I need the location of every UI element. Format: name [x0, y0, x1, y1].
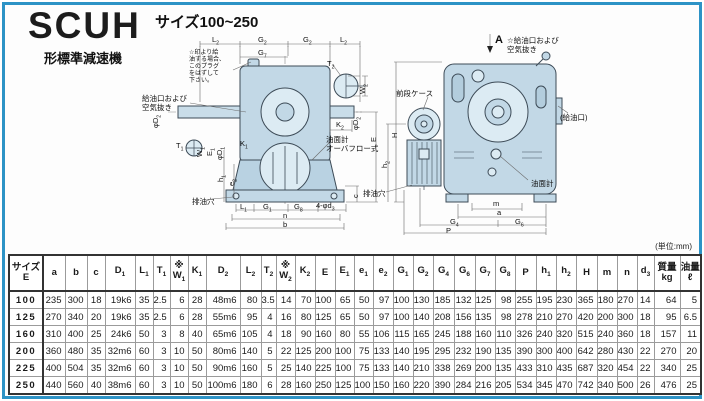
dimension-cell: 105: [240, 326, 261, 343]
dimension-cell: 25: [276, 360, 295, 377]
dimension-cell: 205: [495, 377, 515, 395]
dimension-cell: 200: [597, 309, 617, 326]
dimension-cell: 5: [261, 360, 276, 377]
dimension-cell: 5: [680, 291, 701, 309]
dim-T2: T2: [327, 60, 334, 72]
label-oil-port-vent: 給油口および 空気抜き: [142, 95, 187, 112]
dimension-cell: 320: [556, 326, 576, 343]
dimension-cell: 14: [276, 291, 295, 309]
dimension-cell: 80: [240, 291, 261, 309]
dimension-cell: 195: [536, 291, 556, 309]
dimension-cell: 20: [680, 343, 701, 360]
dimension-cell: 156: [454, 309, 475, 326]
dimension-cell: 300: [536, 343, 556, 360]
dimension-cell: 2.5: [153, 291, 170, 309]
dimension-cell: 6: [261, 377, 276, 395]
dimension-cell: 160: [315, 326, 335, 343]
dim-L2-left: L2: [212, 36, 219, 48]
table-row-size-160: 1603104002524k650384065m6105418901608055…: [9, 326, 701, 343]
dimension-cell: 140: [295, 360, 315, 377]
dimension-cell: 642: [576, 343, 597, 360]
dimension-cell: 60: [135, 360, 153, 377]
column-header: 油量ℓ: [680, 255, 701, 291]
dimension-cell: 200: [475, 360, 495, 377]
dimension-cell: 160: [393, 377, 413, 395]
dimension-cell: 32m6: [105, 343, 135, 360]
dimension-cell: 11: [680, 326, 701, 343]
dimension-cell: 280: [597, 343, 617, 360]
column-header-size: サイズE: [9, 255, 43, 291]
dim-e2: e2: [228, 179, 240, 186]
dimension-cell: 95: [240, 309, 261, 326]
dimension-cell: 480: [65, 343, 87, 360]
dimension-cell: 245: [433, 326, 454, 343]
dimension-cell: 320: [597, 360, 617, 377]
column-header: T1: [153, 255, 170, 291]
dimension-cell: 3: [153, 360, 170, 377]
dimension-cell: 98: [495, 291, 515, 309]
column-header: h2: [556, 255, 576, 291]
dimension-cell: 4: [261, 326, 276, 343]
dimension-cell: 100: [393, 291, 413, 309]
column-header: h1: [536, 255, 556, 291]
dimension-cell: 225: [315, 360, 335, 377]
dimension-cell: 360: [43, 343, 65, 360]
dimension-cell: 65m6: [206, 326, 240, 343]
dimension-cell: 5: [261, 343, 276, 360]
dimension-cell: 97: [373, 291, 393, 309]
dimension-cell: 50: [188, 343, 206, 360]
dimension-cell: 180: [597, 291, 617, 309]
column-header: T2: [261, 255, 276, 291]
dimension-cell: 504: [65, 360, 87, 377]
dimension-cell: 35: [87, 360, 105, 377]
dimension-cell: 22: [276, 343, 295, 360]
table-row-size-100: 1002353001819k6352.562848m6803.514701006…: [9, 291, 701, 309]
dimension-cell: 4: [261, 309, 276, 326]
dimension-cell: 16: [276, 309, 295, 326]
dimension-cell: 64: [654, 291, 680, 309]
dimension-cell: 50: [188, 360, 206, 377]
dimension-cell: 160: [240, 360, 261, 377]
dimension-cell: 135: [495, 360, 515, 377]
dimension-cell: 125: [335, 377, 354, 395]
dim-a: a: [497, 209, 501, 218]
table-row-size-200: 2003604803532m6603105080m614052212520010…: [9, 343, 701, 360]
column-header: D1: [105, 255, 135, 291]
dimension-cell: 433: [515, 360, 536, 377]
dimension-cell: 20: [87, 309, 105, 326]
dimension-cell: 35: [135, 309, 153, 326]
dimension-cell: 560: [65, 377, 87, 395]
dimension-cell: 133: [373, 343, 393, 360]
dimension-cell: 157: [654, 326, 680, 343]
dimension-cell: 8: [170, 326, 188, 343]
label-oil-gauge-side: 油面計: [531, 180, 554, 189]
dimension-cell: 400: [556, 343, 576, 360]
dimension-cell: 35: [135, 291, 153, 309]
dimension-cell: 140: [240, 343, 261, 360]
dimension-cell: 200: [315, 343, 335, 360]
dimension-cell: 18: [276, 326, 295, 343]
row-size-label: 160: [9, 326, 43, 343]
dimension-cell: 270: [617, 291, 637, 309]
dimension-cell: 3.5: [261, 291, 276, 309]
dim-H: H: [391, 133, 400, 138]
dimension-cell: 100: [335, 360, 354, 377]
dimension-cell: 216: [475, 377, 495, 395]
dimension-cell: 278: [515, 309, 536, 326]
dimension-cell: 188: [454, 326, 475, 343]
dimension-cell: 100: [335, 343, 354, 360]
column-header: E: [315, 255, 335, 291]
dimension-cell: 3: [153, 326, 170, 343]
dimension-cell: 270: [556, 309, 576, 326]
dimension-cell: 50: [354, 309, 373, 326]
dim-L2-right: L2: [340, 36, 347, 48]
dimension-cell: 50: [188, 377, 206, 395]
column-header: ※W1: [170, 255, 188, 291]
dimension-cell: 98: [495, 309, 515, 326]
dimension-cell: 130: [413, 291, 433, 309]
column-header: c: [87, 255, 105, 291]
dim-W2: W2: [359, 84, 371, 94]
dimension-cell: 19k6: [105, 309, 135, 326]
dim-P: P: [446, 227, 451, 236]
table-row-size-125: 1252703402019k6352.562855m69541680125655…: [9, 309, 701, 326]
dimension-cell: 300: [617, 309, 637, 326]
column-header: 質量kg: [654, 255, 680, 291]
dimension-cell: 48m6: [206, 291, 240, 309]
dimension-cell: 80: [335, 326, 354, 343]
dimension-cell: 28: [188, 309, 206, 326]
dimension-cell: 2.5: [153, 309, 170, 326]
dimension-cell: 185: [433, 291, 454, 309]
column-header: G4: [433, 255, 454, 291]
dimension-cell: 515: [576, 326, 597, 343]
column-header: G8: [495, 255, 515, 291]
dimension-cell: 235: [43, 291, 65, 309]
dimension-cell: 150: [373, 377, 393, 395]
dimension-cell: 75: [354, 343, 373, 360]
dimension-cell: 28: [188, 291, 206, 309]
dimension-cell: 420: [576, 309, 597, 326]
dim-G2-right: G2: [303, 36, 312, 48]
dimension-cell: 6.5: [680, 309, 701, 326]
column-header: n: [617, 255, 637, 291]
row-size-label: 225: [9, 360, 43, 377]
dimension-cell: 270: [654, 343, 680, 360]
dimension-cell: 24k6: [105, 326, 135, 343]
dimension-cell: 100: [393, 309, 413, 326]
label-drain-side: 排油穴: [363, 190, 386, 199]
dim-K2: K2: [336, 121, 344, 133]
dimension-cell: 26: [637, 377, 654, 395]
dimension-cell: 210: [413, 360, 433, 377]
row-size-label: 250: [9, 377, 43, 395]
dimension-cell: 210: [536, 309, 556, 326]
column-header: G2: [413, 255, 433, 291]
dimension-cell: 80: [295, 309, 315, 326]
dimension-cell: 65: [335, 309, 354, 326]
dim-L1: L1: [240, 203, 247, 215]
column-header: b: [65, 255, 87, 291]
dimension-cell: 140: [413, 309, 433, 326]
dimension-cell: 160: [295, 377, 315, 395]
dimension-cell: 106: [373, 326, 393, 343]
dimension-cell: 18: [637, 309, 654, 326]
column-header: L1: [135, 255, 153, 291]
column-header: a: [43, 255, 65, 291]
dimension-cell: 295: [433, 343, 454, 360]
dim-c: c: [352, 194, 361, 198]
dimension-cell: 60: [135, 377, 153, 395]
label-section-A: A: [495, 36, 503, 45]
dimension-cell: 40: [188, 326, 206, 343]
dimension-cell: 195: [413, 343, 433, 360]
label-oil-gauge-front: 油面計 オーバフロー式: [326, 136, 378, 153]
dimension-cell: 35: [87, 343, 105, 360]
column-header: G6: [454, 255, 475, 291]
dimension-cell: 10: [170, 377, 188, 395]
arrow-A-head: [487, 46, 493, 53]
dimension-cell: 742: [576, 377, 597, 395]
dimension-cell: 340: [597, 377, 617, 395]
dimension-cell: 3: [153, 343, 170, 360]
dimension-cell: 240: [536, 326, 556, 343]
label-front-case: 前段ケース: [396, 90, 433, 99]
dimension-cell: 345: [536, 377, 556, 395]
column-header: d3: [637, 255, 654, 291]
row-size-label: 200: [9, 343, 43, 360]
dimension-cell: 340: [654, 360, 680, 377]
dimension-cell: 25: [680, 377, 701, 395]
dimension-cell: 60: [135, 343, 153, 360]
dimension-cell: 125: [295, 343, 315, 360]
label-oil-fill: (給油口): [560, 114, 588, 123]
row-size-label: 125: [9, 309, 43, 326]
dimension-cell: 75: [354, 360, 373, 377]
dimension-cell: 270: [43, 309, 65, 326]
dimension-cell: 365: [576, 291, 597, 309]
dimension-cell: 390: [433, 377, 454, 395]
dim-G8: G8: [294, 203, 303, 215]
dimension-cell: 22: [637, 343, 654, 360]
dimension-cell: 55m6: [206, 309, 240, 326]
dim-G2-left: G2: [258, 36, 267, 48]
dimension-cell: 95: [654, 309, 680, 326]
dimension-cell: 430: [617, 343, 637, 360]
dim-phiD2-left: φD2: [152, 115, 164, 128]
plug-note: ☆印より給 油する場合、 このプラグ をはずして 下さい。: [189, 50, 237, 85]
dimension-cell: 255: [515, 291, 536, 309]
dimension-cell: 180: [240, 377, 261, 395]
dimension-cell: 476: [654, 377, 680, 395]
dim-K1: K1: [240, 140, 248, 152]
dimension-cell: 687: [576, 360, 597, 377]
dimension-table: サイズEabcD1L1T1※W1K1D2L2T2※W2K2EE1e1e2G1G2…: [8, 254, 702, 395]
dimension-cell: 135: [495, 343, 515, 360]
dimension-cell: 10: [170, 343, 188, 360]
dimension-cell: 22: [637, 360, 654, 377]
column-header: P: [515, 255, 536, 291]
dim-G7: G7: [258, 49, 267, 61]
side-view-drawing: [386, 34, 568, 235]
dimension-cell: 133: [373, 360, 393, 377]
dimension-cell: 125: [315, 309, 335, 326]
dimension-cell: 135: [475, 309, 495, 326]
dimension-cell: 140: [393, 360, 413, 377]
dim-h2: h2: [381, 161, 393, 168]
dimension-cell: 25: [680, 360, 701, 377]
dimension-cell: 55: [354, 326, 373, 343]
column-header: ※W2: [276, 255, 295, 291]
dimension-table-header: サイズEabcD1L1T1※W1K1D2L2T2※W2K2EE1e1e2G1G2…: [9, 255, 701, 291]
dimension-cell: 132: [454, 291, 475, 309]
dimension-cell: 100m6: [206, 377, 240, 395]
dimension-cell: 284: [454, 377, 475, 395]
dimension-cell: 230: [556, 291, 576, 309]
dimension-cell: 400: [65, 326, 87, 343]
dimension-cell: 165: [413, 326, 433, 343]
dimension-cell: 50: [135, 326, 153, 343]
dimension-cell: 360: [617, 326, 637, 343]
dimension-cell: 340: [65, 309, 87, 326]
dim-phiD2-right: φD2: [352, 117, 364, 130]
dim-T1: T1: [176, 142, 183, 154]
dimension-cell: 435: [556, 360, 576, 377]
dimension-cell: 190: [475, 343, 495, 360]
dimension-cell: 454: [617, 360, 637, 377]
label-oil-vent-side: ☆給油口および 空気抜き: [507, 37, 559, 54]
dimension-cell: 70: [295, 291, 315, 309]
dim-b: b: [283, 221, 287, 230]
dimension-cell: 32m6: [105, 360, 135, 377]
dimension-cell: 50: [354, 291, 373, 309]
dimension-cell: 28: [276, 377, 295, 395]
column-header: D2: [206, 255, 240, 291]
dimension-cell: 310: [43, 326, 65, 343]
dimension-cell: 390: [515, 343, 536, 360]
dimension-cell: 18: [87, 291, 105, 309]
dimension-cell: 240: [597, 326, 617, 343]
column-header: m: [597, 255, 617, 291]
dimension-cell: 125: [475, 291, 495, 309]
label-drain-front: 排油穴: [192, 198, 215, 207]
dimension-cell: 90m6: [206, 360, 240, 377]
table-row-size-225: 2254005043532m6603105090m616052514022510…: [9, 360, 701, 377]
dimension-cell: 208: [433, 309, 454, 326]
dimension-cell: 250: [315, 377, 335, 395]
dimension-cell: 65: [335, 291, 354, 309]
dimension-cell: 300: [65, 291, 87, 309]
column-header: e2: [373, 255, 393, 291]
dimension-cell: 19k6: [105, 291, 135, 309]
dimension-cell: 115: [393, 326, 413, 343]
dimension-cell: 500: [617, 377, 637, 395]
dimension-cell: 38m6: [105, 377, 135, 395]
table-row-size-250: 2504405604038m66031050100m61806281602501…: [9, 377, 701, 395]
dimension-cell: 25: [87, 326, 105, 343]
dimension-cell: 338: [433, 360, 454, 377]
dimension-cell: 6: [170, 309, 188, 326]
dimension-cell: 140: [393, 343, 413, 360]
column-header: e1: [354, 255, 373, 291]
dimension-cell: 14: [637, 291, 654, 309]
column-header: K1: [188, 255, 206, 291]
dimension-cell: 269: [454, 360, 475, 377]
column-header: K2: [295, 255, 315, 291]
dim-G4: G4: [450, 218, 459, 230]
dimension-cell: 534: [515, 377, 536, 395]
dimension-cell: 440: [43, 377, 65, 395]
dim-4-phid3: 4-φd3: [316, 202, 335, 214]
dimension-cell: 3: [153, 377, 170, 395]
dimension-cell: 470: [556, 377, 576, 395]
dimension-cell: 400: [43, 360, 65, 377]
dimension-cell: 160: [475, 326, 495, 343]
column-header: H: [576, 255, 597, 291]
dimension-cell: 310: [536, 360, 556, 377]
dimension-cell: 100: [315, 291, 335, 309]
dimension-cell: 10: [170, 360, 188, 377]
dim-G6: G6: [515, 218, 524, 230]
column-header: G1: [393, 255, 413, 291]
dimension-cell: 97: [373, 309, 393, 326]
row-size-label: 100: [9, 291, 43, 309]
dim-phiD1: φD1: [216, 147, 228, 160]
dimension-cell: 326: [515, 326, 536, 343]
dimension-cell: 6: [170, 291, 188, 309]
dimension-cell: 40: [87, 377, 105, 395]
dimension-cell: 100: [354, 377, 373, 395]
dimension-cell: 232: [454, 343, 475, 360]
catalog-page: { "header": { "model": "SCUH", "model_su…: [0, 0, 704, 401]
dim-G1: G1: [263, 203, 272, 215]
dimension-cell: 90: [295, 326, 315, 343]
dimension-cell: 220: [413, 377, 433, 395]
column-header: L2: [240, 255, 261, 291]
dimension-cell: 18: [637, 326, 654, 343]
column-header: E1: [335, 255, 354, 291]
column-header: G7: [475, 255, 495, 291]
dimension-cell: 110: [495, 326, 515, 343]
dimension-cell: 80m6: [206, 343, 240, 360]
